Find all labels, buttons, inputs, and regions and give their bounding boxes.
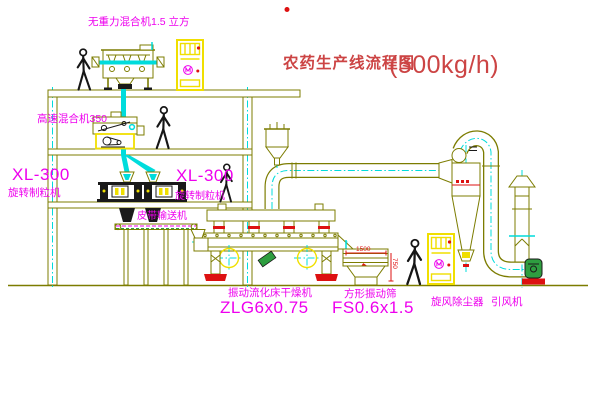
- vibrating-screen: 1500 750: [343, 246, 398, 285]
- floor-slab-top: [48, 90, 300, 97]
- cyclone-outlet-elbow: [452, 149, 466, 163]
- label-granulator-left-name: 旋转制粒机: [8, 186, 61, 199]
- fan-base: [522, 279, 545, 285]
- label-screen-model: FS0.6x1.5: [332, 298, 414, 317]
- label-fan: 引风机: [491, 295, 523, 308]
- stack-cap: [509, 176, 535, 187]
- mixer-drive-housing: [96, 134, 134, 149]
- label-dryer-model: ZLG6x0.75: [220, 298, 309, 317]
- label-cyclone: 旋风除尘器: [431, 295, 484, 308]
- label-belt-conveyor: 皮带输送机: [137, 209, 187, 222]
- person-ground: [407, 240, 421, 284]
- screen-length-dimension: 1500: [356, 246, 371, 253]
- person-middle-floor: [157, 107, 170, 148]
- label-granulator-left-model: XL-300: [12, 165, 70, 184]
- exhaust-duct: [272, 163, 439, 210]
- dryer-plenum: [207, 210, 335, 221]
- fluid-bed-dryer: [192, 204, 353, 281]
- belt-conveyor: [115, 224, 205, 285]
- control-cabinet-top: [177, 40, 203, 90]
- feed-chute: [264, 122, 290, 168]
- red-plot-mark: [285, 7, 290, 12]
- label-granulator-right-name: 旋转制粒机: [175, 189, 225, 202]
- control-cabinet-ground: [428, 234, 454, 284]
- dryer-body: [198, 233, 338, 251]
- cad-flow-diagram: 1500 750: [0, 0, 600, 403]
- conveyor-discharge-chute: [191, 230, 205, 239]
- floor-slab-middle: [48, 149, 252, 155]
- dryer-inlet: [194, 238, 208, 251]
- gravity-mixer: [92, 42, 164, 90]
- label-gravity-mixer: 无重力混合机1.5 立方: [88, 15, 190, 28]
- label-high-speed-mixer: 高速混合机350: [37, 112, 107, 125]
- person-top-floor: [78, 49, 90, 89]
- induced-draft-fan: [522, 259, 545, 285]
- mixer-shaft: [94, 61, 162, 65]
- label-granulator-right-model: XL-300: [176, 166, 234, 185]
- diagram-title: 农药生产线流程图 (500kg/h): [282, 51, 499, 79]
- title-capacity: (500kg/h): [389, 51, 499, 79]
- screen-height-dimension: 750: [391, 258, 398, 269]
- dryer-drive-motor: [258, 251, 276, 267]
